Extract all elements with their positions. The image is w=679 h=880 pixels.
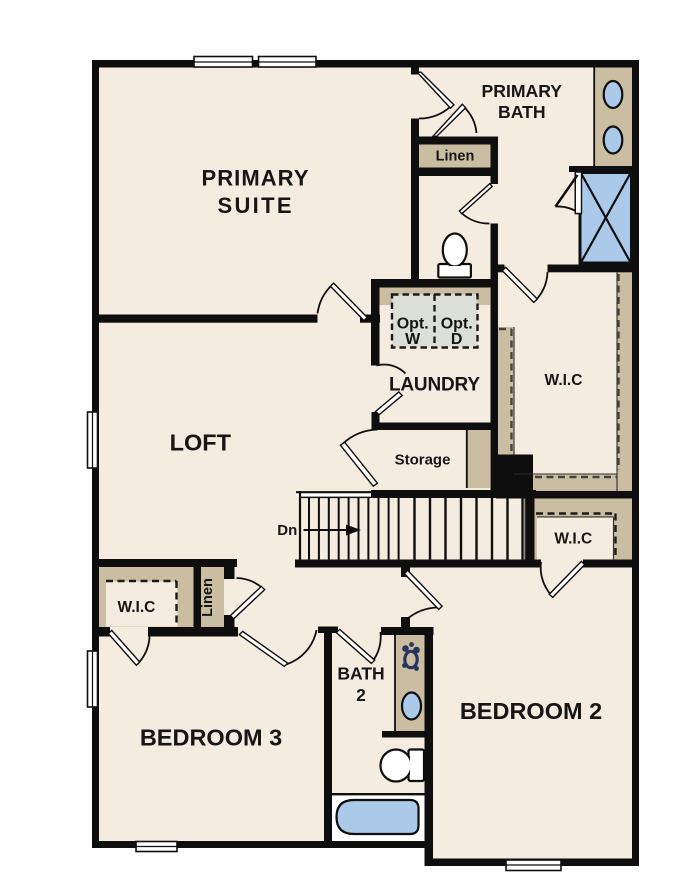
svg-text:PRIMARY: PRIMARY: [482, 81, 563, 101]
svg-text:W.I.C: W.I.C: [545, 372, 583, 389]
svg-text:Opt.: Opt.: [441, 316, 473, 333]
svg-text:SUITE: SUITE: [218, 193, 292, 218]
svg-text:Linen: Linen: [436, 149, 475, 165]
svg-text:BEDROOM 3: BEDROOM 3: [140, 725, 282, 751]
svg-text:Opt.: Opt.: [397, 316, 429, 333]
svg-text:D: D: [451, 331, 463, 348]
svg-text:BATH: BATH: [498, 102, 546, 122]
svg-text:LAUNDRY: LAUNDRY: [389, 375, 480, 396]
svg-text:W: W: [405, 331, 421, 348]
svg-text:2: 2: [356, 685, 366, 705]
svg-text:BATH: BATH: [337, 664, 384, 684]
svg-text:Linen: Linen: [200, 578, 216, 617]
svg-text:Dn: Dn: [277, 522, 297, 539]
svg-text:W.I.C: W.I.C: [554, 531, 592, 548]
svg-text:Storage: Storage: [395, 452, 451, 469]
svg-text:W.I.C: W.I.C: [117, 599, 155, 616]
svg-text:BEDROOM 2: BEDROOM 2: [460, 698, 602, 724]
svg-text:PRIMARY: PRIMARY: [202, 166, 309, 191]
svg-text:LOFT: LOFT: [170, 430, 232, 456]
